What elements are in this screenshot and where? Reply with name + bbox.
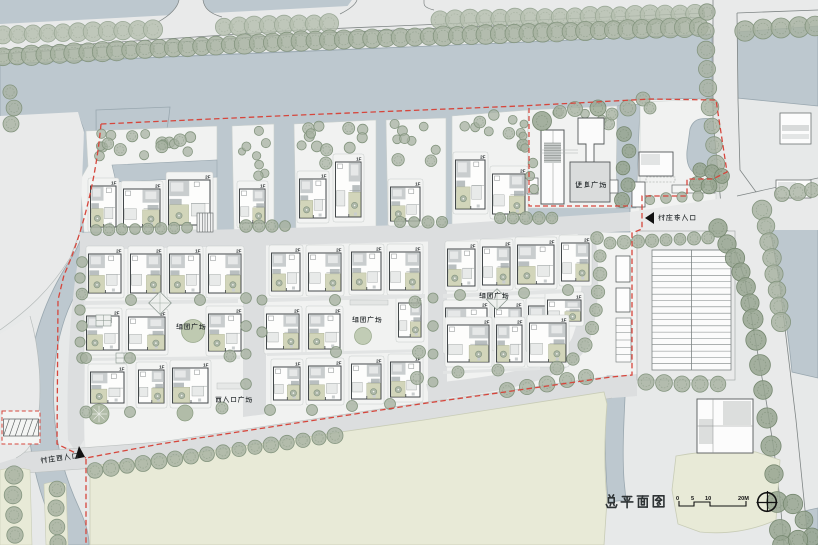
svg-text:1F: 1F — [195, 249, 201, 254]
svg-text:2F: 2F — [584, 238, 590, 243]
svg-text:2F: 2F — [336, 361, 342, 366]
svg-text:2F: 2F — [549, 240, 555, 245]
svg-text:1F: 1F — [321, 174, 327, 179]
svg-text:2F: 2F — [415, 247, 421, 252]
svg-text:2F: 2F — [480, 155, 486, 160]
svg-text:2F: 2F — [482, 303, 488, 308]
svg-text:1F: 1F — [119, 367, 125, 372]
svg-text:2F: 2F — [156, 249, 162, 254]
svg-text:2F: 2F — [517, 320, 523, 325]
svg-text:2F: 2F — [470, 244, 476, 249]
svg-text:2F: 2F — [236, 249, 242, 254]
svg-text:2F: 2F — [376, 359, 382, 364]
svg-text:1F: 1F — [111, 181, 117, 186]
svg-text:1F: 1F — [356, 157, 362, 162]
svg-text:2F: 2F — [484, 320, 490, 325]
svg-text:2F: 2F — [205, 175, 211, 180]
svg-text:10: 10 — [705, 496, 711, 502]
svg-text:1F: 1F — [295, 362, 301, 367]
svg-text:2F: 2F — [116, 249, 122, 254]
svg-text:2F: 2F — [155, 184, 161, 189]
svg-text:1F: 1F — [203, 363, 209, 368]
svg-text:2F: 2F — [505, 242, 511, 247]
svg-text:20M: 20M — [738, 496, 749, 502]
svg-text:2F: 2F — [335, 309, 341, 314]
svg-text:2F: 2F — [516, 303, 522, 308]
svg-text:2F: 2F — [520, 169, 526, 174]
svg-text:1F: 1F — [415, 182, 421, 187]
svg-text:1F: 1F — [159, 365, 165, 370]
svg-text:2F: 2F — [114, 311, 120, 316]
svg-text:2F: 2F — [336, 248, 342, 253]
svg-text:2F: 2F — [295, 248, 301, 253]
svg-text:1F: 1F — [561, 318, 567, 323]
svg-text:1F: 1F — [576, 295, 582, 300]
svg-text:2F: 2F — [236, 309, 242, 314]
svg-text:5: 5 — [691, 496, 694, 502]
svg-text:2F: 2F — [294, 309, 300, 314]
svg-text:2F: 2F — [376, 247, 382, 252]
svg-text:1F: 1F — [260, 184, 266, 189]
